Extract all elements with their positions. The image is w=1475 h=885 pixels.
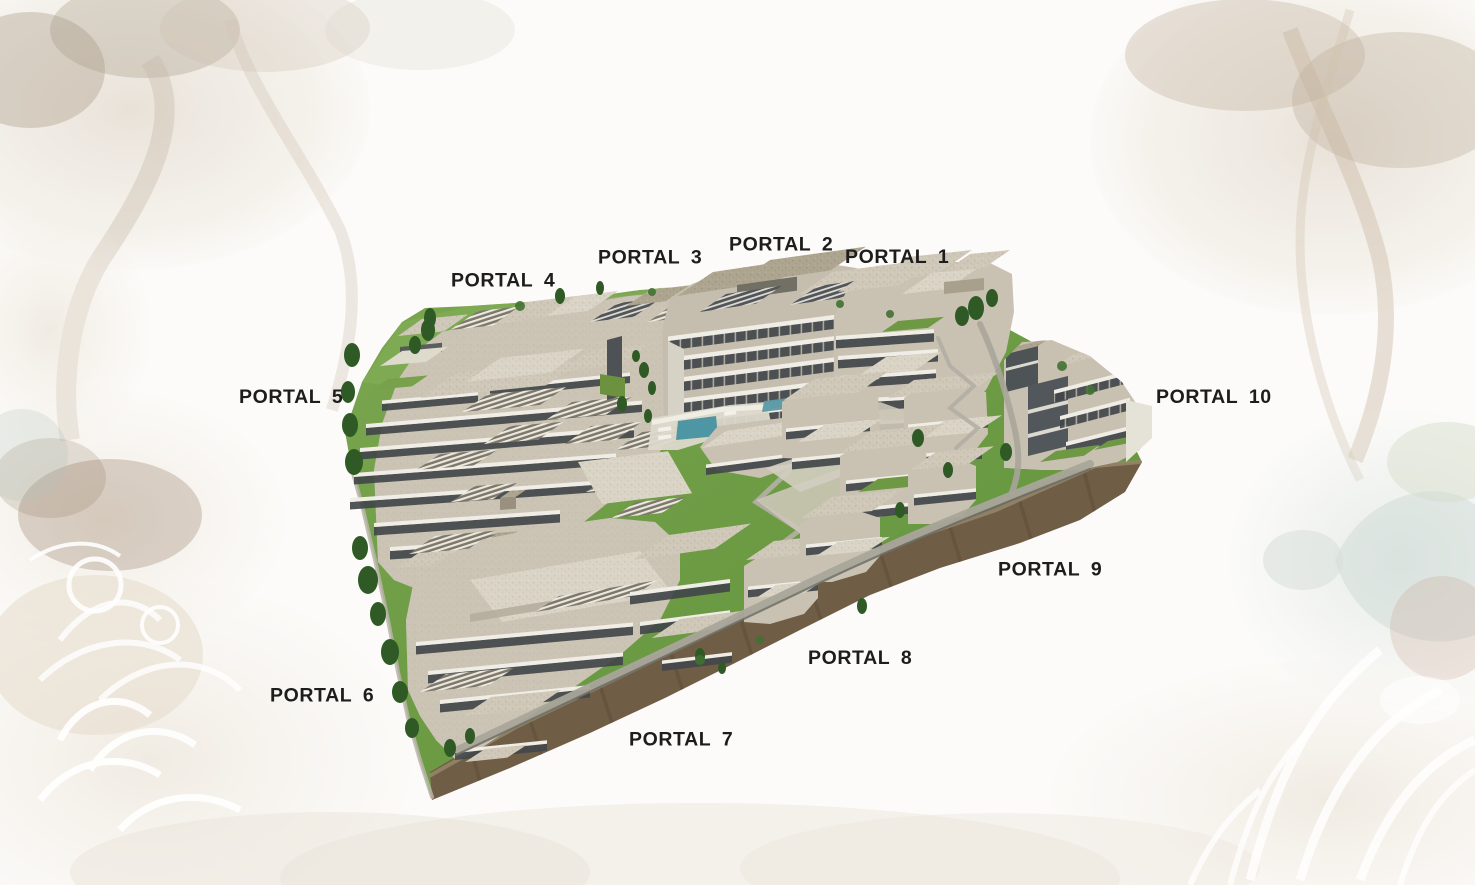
svg-text:PORTAL 5: PORTAL 5 — [239, 386, 343, 408]
svg-text:PORTAL 8: PORTAL 8 — [808, 647, 912, 669]
svg-text:PORTAL 9: PORTAL 9 — [998, 559, 1102, 581]
svg-text:PORTAL 1: PORTAL 1 — [845, 246, 949, 268]
svg-text:PORTAL 10: PORTAL 10 — [1156, 386, 1272, 408]
svg-text:PORTAL 4: PORTAL 4 — [451, 270, 555, 292]
svg-text:PORTAL 6: PORTAL 6 — [270, 685, 374, 707]
svg-text:PORTAL 2: PORTAL 2 — [729, 234, 833, 256]
svg-text:PORTAL 3: PORTAL 3 — [598, 247, 702, 269]
svg-text:PORTAL 7: PORTAL 7 — [629, 729, 733, 751]
